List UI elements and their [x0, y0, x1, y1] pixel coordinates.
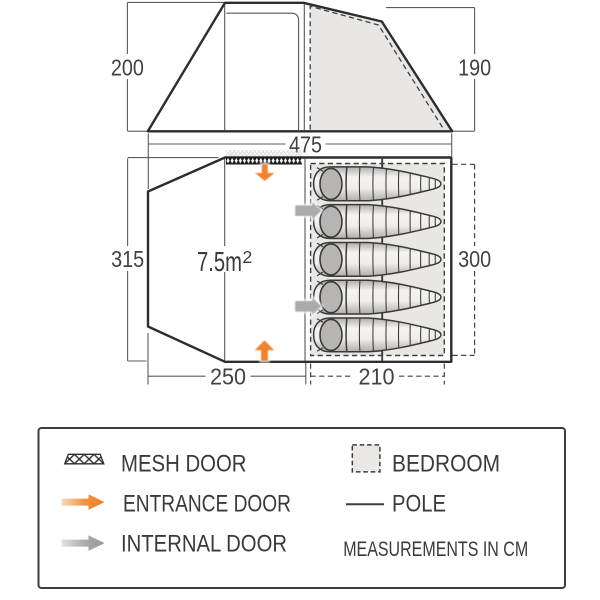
svg-text:2: 2 [243, 247, 253, 267]
svg-text:MESH DOOR: MESH DOOR [121, 450, 247, 477]
svg-text:7.5m: 7.5m [197, 246, 242, 277]
svg-text:POLE: POLE [392, 491, 446, 518]
svg-text:200: 200 [111, 54, 144, 80]
svg-text:250: 250 [210, 364, 246, 390]
svg-text:ENTRANCE DOOR: ENTRANCE DOOR [123, 491, 291, 518]
svg-text:315: 315 [111, 246, 144, 272]
svg-text:INTERNAL DOOR: INTERNAL DOOR [121, 531, 287, 558]
svg-text:210: 210 [359, 364, 395, 390]
svg-text:300: 300 [458, 246, 491, 272]
svg-text:190: 190 [458, 54, 491, 80]
svg-text:MEASUREMENTS IN CM: MEASUREMENTS IN CM [343, 538, 528, 561]
svg-text:BEDROOM: BEDROOM [392, 451, 500, 478]
